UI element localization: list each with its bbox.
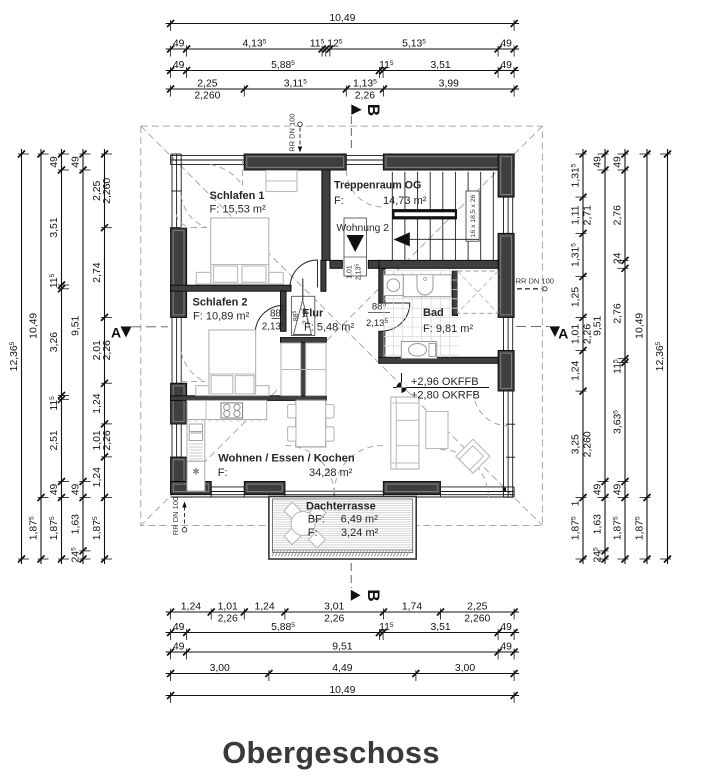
svg-text:49: 49	[49, 484, 60, 496]
svg-text:2,26: 2,26	[218, 614, 238, 625]
svg-text:10,49: 10,49	[29, 313, 40, 339]
svg-text:3,99: 3,99	[439, 79, 459, 90]
svg-text:24: 24	[613, 252, 624, 264]
svg-text:49: 49	[613, 484, 624, 496]
svg-text:1: 1	[571, 500, 582, 506]
svg-text:4,49: 4,49	[332, 663, 352, 674]
svg-text:3,24 m²: 3,24 m²	[341, 527, 379, 539]
svg-text:RR DN 100: RR DN 100	[288, 113, 297, 151]
svg-text:+2,80 OKRFB: +2,80 OKRFB	[411, 390, 480, 402]
svg-text:2,260: 2,260	[464, 614, 490, 625]
svg-text:49: 49	[593, 484, 604, 496]
svg-text:F: 15,53 m²: F: 15,53 m²	[210, 204, 267, 216]
svg-text:49: 49	[593, 156, 604, 168]
svg-text:1,24: 1,24	[92, 467, 103, 487]
svg-text:2,76: 2,76	[613, 205, 624, 225]
svg-text:49: 49	[71, 156, 82, 168]
svg-text:3,51: 3,51	[430, 60, 450, 71]
svg-text:49: 49	[500, 622, 512, 633]
svg-text:1,11: 1,11	[571, 205, 582, 225]
svg-text:Schlafen 2: Schlafen 2	[193, 297, 248, 309]
svg-text:2,76: 2,76	[613, 303, 624, 323]
svg-text:3,00: 3,00	[210, 663, 230, 674]
svg-text:A: A	[111, 325, 121, 341]
svg-text:Treppenraum OG: Treppenraum OG	[334, 180, 421, 192]
svg-text:F: 9,81 m²: F: 9,81 m²	[423, 323, 473, 335]
svg-text:14,73 m²: 14,73 m²	[383, 195, 427, 207]
svg-text:1,63: 1,63	[71, 514, 82, 534]
svg-text:49: 49	[613, 156, 624, 168]
svg-text:2,26: 2,26	[102, 340, 113, 360]
svg-text:1,24: 1,24	[92, 393, 103, 413]
svg-text:1,74: 1,74	[402, 602, 422, 613]
svg-text:9,51: 9,51	[332, 642, 352, 653]
svg-text:2,74: 2,74	[92, 262, 103, 282]
svg-text:2,26: 2,26	[102, 430, 113, 450]
svg-text:1,63: 1,63	[593, 514, 604, 534]
svg-text:RR DN 100: RR DN 100	[516, 277, 554, 286]
svg-text:34,28 m²: 34,28 m²	[309, 467, 353, 479]
svg-text:F: 10,89 m²: F: 10,89 m²	[193, 311, 250, 323]
svg-text:49: 49	[173, 39, 185, 50]
svg-text:3,51: 3,51	[430, 622, 450, 633]
svg-text:2,260: 2,260	[583, 431, 594, 457]
svg-text:BF:: BF:	[308, 514, 325, 526]
svg-text:1,24: 1,24	[181, 602, 201, 613]
svg-text:49: 49	[500, 39, 512, 50]
svg-text:1,01: 1,01	[571, 324, 582, 344]
svg-text:Bad: Bad	[423, 307, 444, 319]
svg-text:49: 49	[173, 642, 185, 653]
svg-text:Wohnung 2: Wohnung 2	[337, 223, 390, 234]
svg-text:2,26: 2,26	[355, 91, 375, 102]
svg-text:49: 49	[500, 642, 512, 653]
svg-text:3,25: 3,25	[571, 434, 582, 454]
svg-text:+2,96 OKFFB: +2,96 OKFFB	[411, 376, 479, 388]
svg-text:2,260: 2,260	[194, 91, 220, 102]
svg-text:3,00: 3,00	[455, 663, 475, 674]
svg-text:1,25: 1,25	[571, 287, 582, 307]
svg-text:2,71: 2,71	[583, 205, 594, 225]
svg-text:10,49: 10,49	[329, 13, 355, 24]
svg-text:9,51: 9,51	[593, 315, 604, 335]
svg-text:49: 49	[500, 60, 512, 71]
svg-text:1,24: 1,24	[571, 360, 582, 380]
svg-text:2,260: 2,260	[102, 178, 113, 204]
svg-text:✱: ✱	[192, 467, 200, 477]
svg-text:12,365: 12,365	[9, 341, 20, 371]
svg-text:49: 49	[71, 484, 82, 496]
svg-text:2,25: 2,25	[197, 79, 217, 90]
svg-text:2,26: 2,26	[324, 614, 344, 625]
svg-text:12,365: 12,365	[655, 341, 666, 371]
svg-text:9,51: 9,51	[71, 315, 82, 335]
svg-text:16 x 18,5 x 26: 16 x 18,5 x 26	[470, 194, 477, 237]
svg-text:RR DN 100: RR DN 100	[171, 497, 180, 535]
svg-text:F:: F:	[308, 527, 318, 539]
svg-text:B: B	[364, 104, 383, 116]
svg-text:Wohnen / Essen / Kochen: Wohnen / Essen / Kochen	[218, 453, 355, 465]
svg-text:F:: F:	[334, 195, 344, 207]
svg-text:10,49: 10,49	[329, 685, 355, 696]
svg-text:3,26: 3,26	[49, 332, 60, 352]
svg-text:F:: F:	[218, 467, 228, 479]
svg-text:49: 49	[173, 622, 185, 633]
svg-text:10,49: 10,49	[635, 313, 646, 339]
svg-text:49: 49	[173, 60, 185, 71]
svg-text:B: B	[364, 589, 383, 601]
svg-text:Flur: Flur	[303, 308, 324, 320]
svg-text:A: A	[558, 326, 568, 342]
svg-text:1,01: 1,01	[218, 602, 238, 613]
svg-text:F: 5,48 m²: F: 5,48 m²	[304, 322, 354, 334]
svg-text:49: 49	[49, 156, 60, 168]
svg-text:1,24: 1,24	[254, 602, 274, 613]
svg-text:Obergeschoss: Obergeschoss	[222, 735, 440, 770]
svg-text:6,49 m²: 6,49 m²	[341, 514, 379, 526]
svg-text:Dachterrasse: Dachterrasse	[306, 501, 376, 513]
svg-text:2,51: 2,51	[49, 430, 60, 450]
svg-text:3,51: 3,51	[49, 217, 60, 237]
svg-text:Schlafen 1: Schlafen 1	[210, 190, 265, 202]
svg-text:1,01: 1,01	[347, 265, 354, 279]
svg-text:3,01: 3,01	[324, 602, 344, 613]
svg-text:2,25: 2,25	[467, 602, 487, 613]
